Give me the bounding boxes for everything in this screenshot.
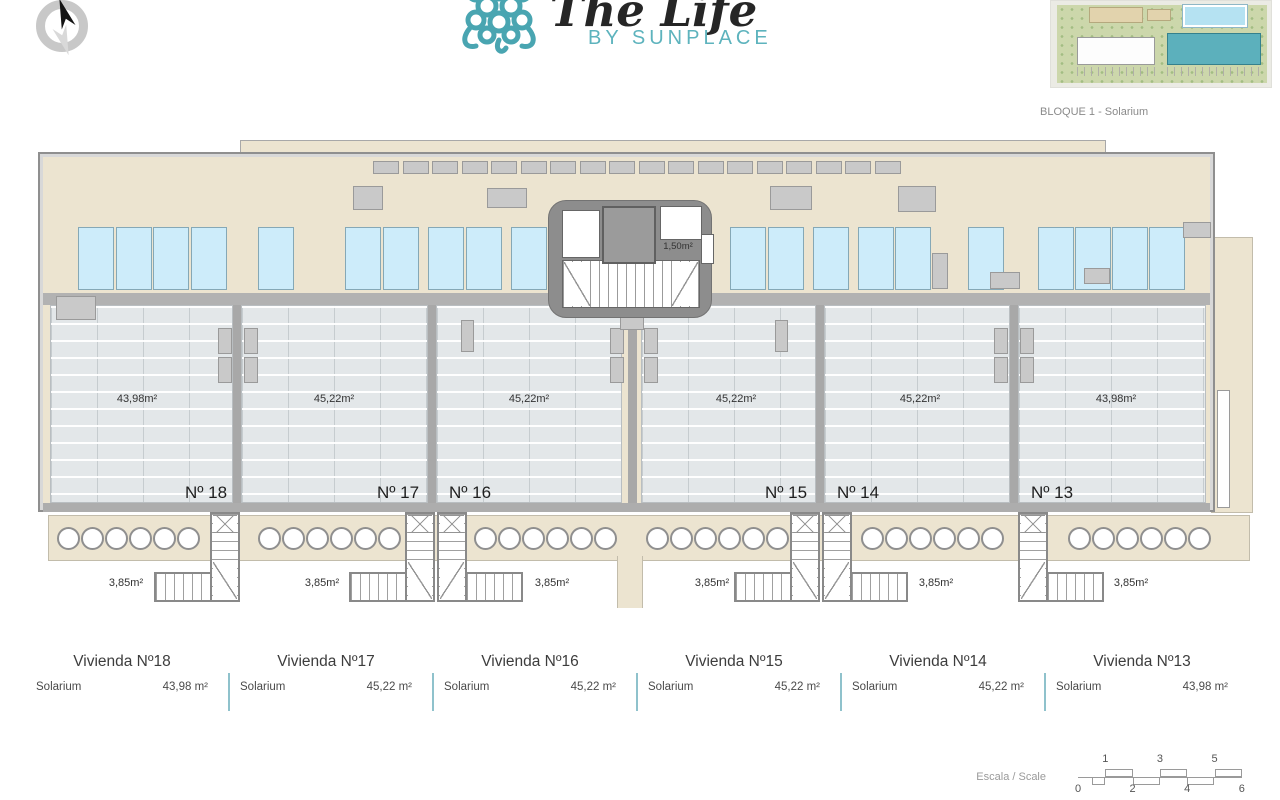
service-block	[994, 328, 1008, 354]
legend-title-1: Vivienda Nº18	[36, 653, 208, 671]
roof-vent	[462, 161, 488, 174]
terrace-partition	[816, 305, 824, 503]
stair-run	[850, 572, 908, 602]
storage-room-area-label: 1,50m²	[648, 241, 708, 252]
solar-panel	[466, 227, 502, 290]
stair-landing	[440, 515, 464, 533]
key-plan-block-2	[1077, 37, 1155, 65]
scale-number: 3	[1157, 753, 1163, 765]
pergola-column	[153, 527, 176, 550]
solar-panel	[428, 227, 464, 290]
solar-panel	[1149, 227, 1185, 290]
service-block	[775, 320, 788, 352]
site-key-plan	[1050, 0, 1272, 88]
legend-title-2: Vivienda Nº17	[240, 653, 412, 671]
terrace-area-label: 43,98m²	[1096, 393, 1136, 405]
roof-vent	[698, 161, 724, 174]
terrace-area-label: 45,22m²	[509, 393, 549, 405]
compass-icon	[36, 0, 96, 62]
pergola-column	[522, 527, 545, 550]
stair-run	[154, 572, 212, 602]
pergola-column	[105, 527, 128, 550]
pergola-column	[474, 527, 497, 550]
stair-winder	[793, 562, 817, 599]
solar-panel	[730, 227, 766, 290]
pergola-column	[177, 527, 200, 550]
service-block	[487, 188, 527, 208]
solar-panel	[511, 227, 547, 290]
roof-vent	[521, 161, 547, 174]
terrace-area-label: 45,22m²	[900, 393, 940, 405]
stair-winder	[440, 562, 464, 599]
roof-vent	[816, 161, 842, 174]
unit-number-label: Nº 18	[185, 483, 227, 503]
pergola-column	[282, 527, 305, 550]
key-plan-amenity-building	[1147, 9, 1171, 21]
logo-ornament-icon	[456, 0, 542, 58]
core-storage-room	[660, 206, 702, 240]
pergola-column	[498, 527, 521, 550]
solar-panel	[858, 227, 894, 290]
stair-area-label: 3,85m²	[1114, 577, 1148, 589]
pergola-column	[354, 527, 377, 550]
terrace-area-label: 45,22m²	[314, 393, 354, 405]
legend-divider	[228, 673, 230, 711]
key-plan-block-1-highlighted	[1167, 33, 1261, 65]
service-block	[218, 328, 232, 354]
terrace-partition	[233, 305, 241, 503]
stair-area-label: 3,85m²	[919, 577, 953, 589]
legend-room-value: 45,22 m²	[444, 681, 616, 693]
scale-number: 4	[1184, 783, 1190, 795]
scale-number: 1	[1102, 753, 1108, 765]
legend-divider	[432, 673, 434, 711]
solar-panel	[768, 227, 804, 290]
stair-area-label: 3,85m²	[695, 577, 729, 589]
key-plan-pool	[1183, 5, 1247, 27]
roof-vent	[550, 161, 576, 174]
roof-vent	[580, 161, 606, 174]
scale-bar-label: Escala / Scale	[960, 771, 1046, 783]
roof-vent	[403, 161, 429, 174]
solar-panel	[383, 227, 419, 290]
service-block	[218, 357, 232, 383]
solar-panel	[116, 227, 152, 290]
pergola-column	[330, 527, 353, 550]
stair-landing	[793, 515, 817, 533]
key-plan-parking	[1077, 67, 1155, 76]
stair-winder	[213, 562, 237, 599]
terrace-bottom-wall	[43, 503, 1210, 512]
core-vestibule	[562, 210, 600, 258]
legend-title-4: Vivienda Nº15	[648, 653, 820, 671]
pergola-column	[957, 527, 980, 550]
scale-number: 0	[1075, 783, 1081, 795]
stair-landing	[408, 515, 432, 533]
legend-title-3: Vivienda Nº16	[444, 653, 616, 671]
legend-room-value: 45,22 m²	[852, 681, 1024, 693]
scale-number: 6	[1239, 783, 1245, 795]
pergola-column	[1092, 527, 1115, 550]
service-block	[770, 186, 812, 210]
stair-run	[465, 572, 523, 602]
terrace-partition	[1010, 305, 1018, 503]
stair-winder	[825, 562, 849, 599]
service-block	[994, 357, 1008, 383]
stair-run	[734, 572, 792, 602]
service-block	[1084, 268, 1110, 284]
side-planter	[1217, 390, 1230, 508]
solar-panel	[345, 227, 381, 290]
service-block	[56, 296, 96, 320]
unit-number-label: Nº 13	[1031, 483, 1073, 503]
roof-vent	[491, 161, 517, 174]
stair-area-label: 3,85m²	[535, 577, 569, 589]
pergola-column	[694, 527, 717, 550]
key-plan-amenity-building	[1089, 7, 1143, 23]
unit-number-label: Nº 16	[449, 483, 491, 503]
roof-vent	[373, 161, 399, 174]
key-plan-parking	[1167, 67, 1261, 76]
solar-panel	[813, 227, 849, 290]
solar-panel	[153, 227, 189, 290]
logo-subtitle: BY SUNPLACE	[588, 27, 772, 50]
pergola-column	[742, 527, 765, 550]
terrace-area-label: 43,98m²	[117, 393, 157, 405]
service-block	[644, 328, 658, 354]
legend-title-5: Vivienda Nº14	[852, 653, 1024, 671]
service-block	[644, 357, 658, 383]
roof-vent	[757, 161, 783, 174]
service-block	[244, 328, 258, 354]
roof-vent	[845, 161, 871, 174]
pergola-column	[646, 527, 669, 550]
scale-number: 5	[1211, 753, 1217, 765]
stair-landing	[825, 515, 849, 533]
legend-divider	[840, 673, 842, 711]
roof-vent	[609, 161, 635, 174]
terrace-partition	[428, 305, 436, 503]
pergola-column	[57, 527, 80, 550]
pergola-column	[766, 527, 789, 550]
pergola-column	[1140, 527, 1163, 550]
stair-winder	[408, 562, 432, 599]
terrace-area-label: 45,22m²	[716, 393, 756, 405]
pergola-column	[1188, 527, 1211, 550]
scale-box	[1187, 777, 1214, 785]
legend-room-value: 43,98 m²	[1056, 681, 1228, 693]
pergola-column	[1164, 527, 1187, 550]
solar-panel	[1112, 227, 1148, 290]
roof-vent	[639, 161, 665, 174]
terrace-partition	[628, 305, 637, 503]
solar-panel	[78, 227, 114, 290]
service-block	[610, 328, 624, 354]
scale-number: 2	[1130, 783, 1136, 795]
pergola-column	[594, 527, 617, 550]
legend-room-value: 45,22 m²	[240, 681, 412, 693]
service-block	[990, 272, 1020, 289]
service-block	[610, 357, 624, 383]
legend-divider	[636, 673, 638, 711]
stair-landing	[213, 515, 237, 533]
roof-vent	[727, 161, 753, 174]
stair-area-label: 3,85m²	[109, 577, 143, 589]
stair-winder	[1021, 562, 1045, 599]
service-block	[1020, 357, 1034, 383]
solar-panel	[258, 227, 294, 290]
walkway-stem	[617, 556, 643, 608]
solar-panel	[1038, 227, 1074, 290]
legend-room-value: 43,98 m²	[36, 681, 208, 693]
stair-run	[349, 572, 407, 602]
pergola-column	[1116, 527, 1139, 550]
pergola-column	[981, 527, 1004, 550]
legend-divider	[1044, 673, 1046, 711]
legend-room-value: 45,22 m²	[648, 681, 820, 693]
legend-title-6: Vivienda Nº13	[1056, 653, 1228, 671]
core-elevator-shaft	[602, 206, 656, 264]
roof-vent	[432, 161, 458, 174]
pergola-column	[861, 527, 884, 550]
service-block	[898, 186, 936, 212]
service-block	[932, 253, 948, 289]
pergola-column	[306, 527, 329, 550]
scale-box	[1092, 777, 1106, 785]
unit-number-label: Nº 14	[837, 483, 879, 503]
pergola-column	[909, 527, 932, 550]
pergola-column	[258, 527, 281, 550]
pergola-column	[570, 527, 593, 550]
solar-panel	[895, 227, 931, 290]
scale-box	[1215, 769, 1242, 777]
pergola-column	[885, 527, 908, 550]
brochure-page: The Life BY SUNPLACE BLOQUE 1 - Solarium…	[0, 0, 1280, 800]
service-block	[461, 320, 474, 352]
pergola-column	[129, 527, 152, 550]
pergola-column	[670, 527, 693, 550]
unit-number-label: Nº 15	[765, 483, 807, 503]
unit-number-label: Nº 17	[377, 483, 419, 503]
core-stair-winder	[672, 262, 698, 306]
pergola-column	[933, 527, 956, 550]
stair-landing	[1021, 515, 1045, 533]
pergola-column	[1068, 527, 1091, 550]
stair-area-label: 3,85m²	[305, 577, 339, 589]
pergola-column	[546, 527, 569, 550]
service-block	[1020, 328, 1034, 354]
scale-box	[1105, 769, 1132, 777]
stair-run	[1046, 572, 1104, 602]
roof-vent	[668, 161, 694, 174]
service-block	[1183, 222, 1211, 238]
core-stair-winder	[564, 262, 590, 306]
service-block	[244, 357, 258, 383]
scale-box	[1160, 769, 1187, 777]
key-plan-caption: BLOQUE 1 - Solarium	[1040, 106, 1148, 118]
roof-vent	[875, 161, 901, 174]
roof-vent	[786, 161, 812, 174]
pergola-column	[718, 527, 741, 550]
service-block	[353, 186, 383, 210]
scale-box	[1133, 777, 1160, 785]
pergola-column	[378, 527, 401, 550]
pergola-column	[81, 527, 104, 550]
solar-panel	[191, 227, 227, 290]
